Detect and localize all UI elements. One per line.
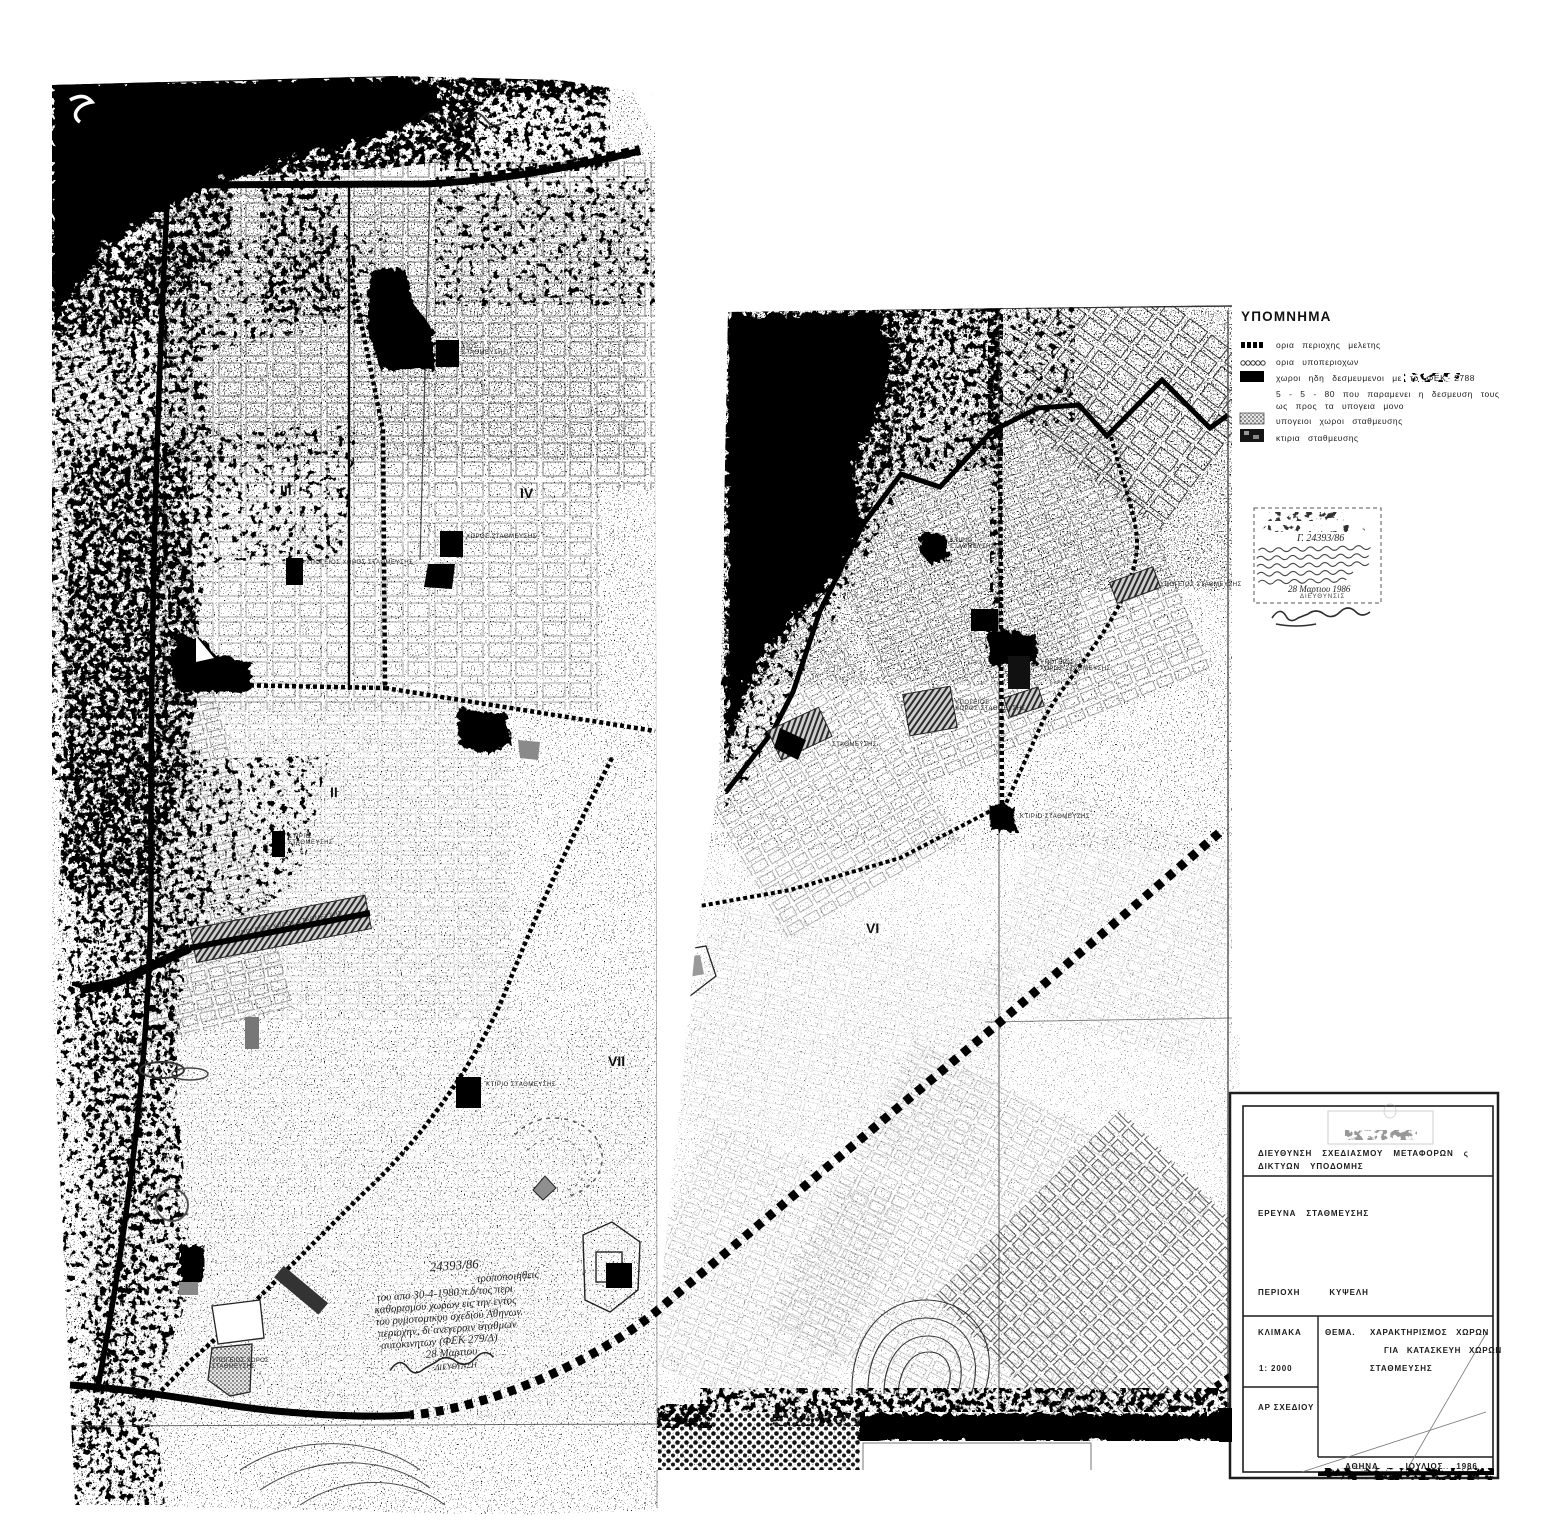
svg-text:VI: VI — [866, 920, 879, 936]
svg-text:IV: IV — [520, 485, 534, 501]
svg-text:III: III — [280, 482, 292, 498]
svg-text:VII: VII — [608, 1053, 625, 1069]
svg-text:II: II — [330, 784, 338, 800]
